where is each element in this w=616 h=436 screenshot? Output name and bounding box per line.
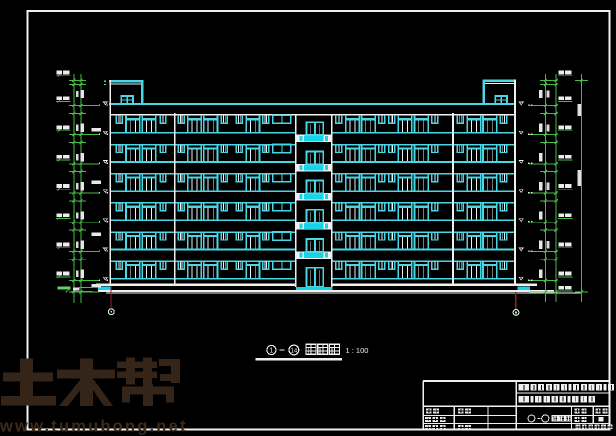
svg-text:www.tumubong.net: www.tumubong.net bbox=[0, 418, 188, 436]
svg-text:1: 1 bbox=[269, 348, 273, 355]
svg-text:1 : 100: 1 : 100 bbox=[346, 346, 369, 355]
svg-text:14: 14 bbox=[291, 349, 298, 355]
